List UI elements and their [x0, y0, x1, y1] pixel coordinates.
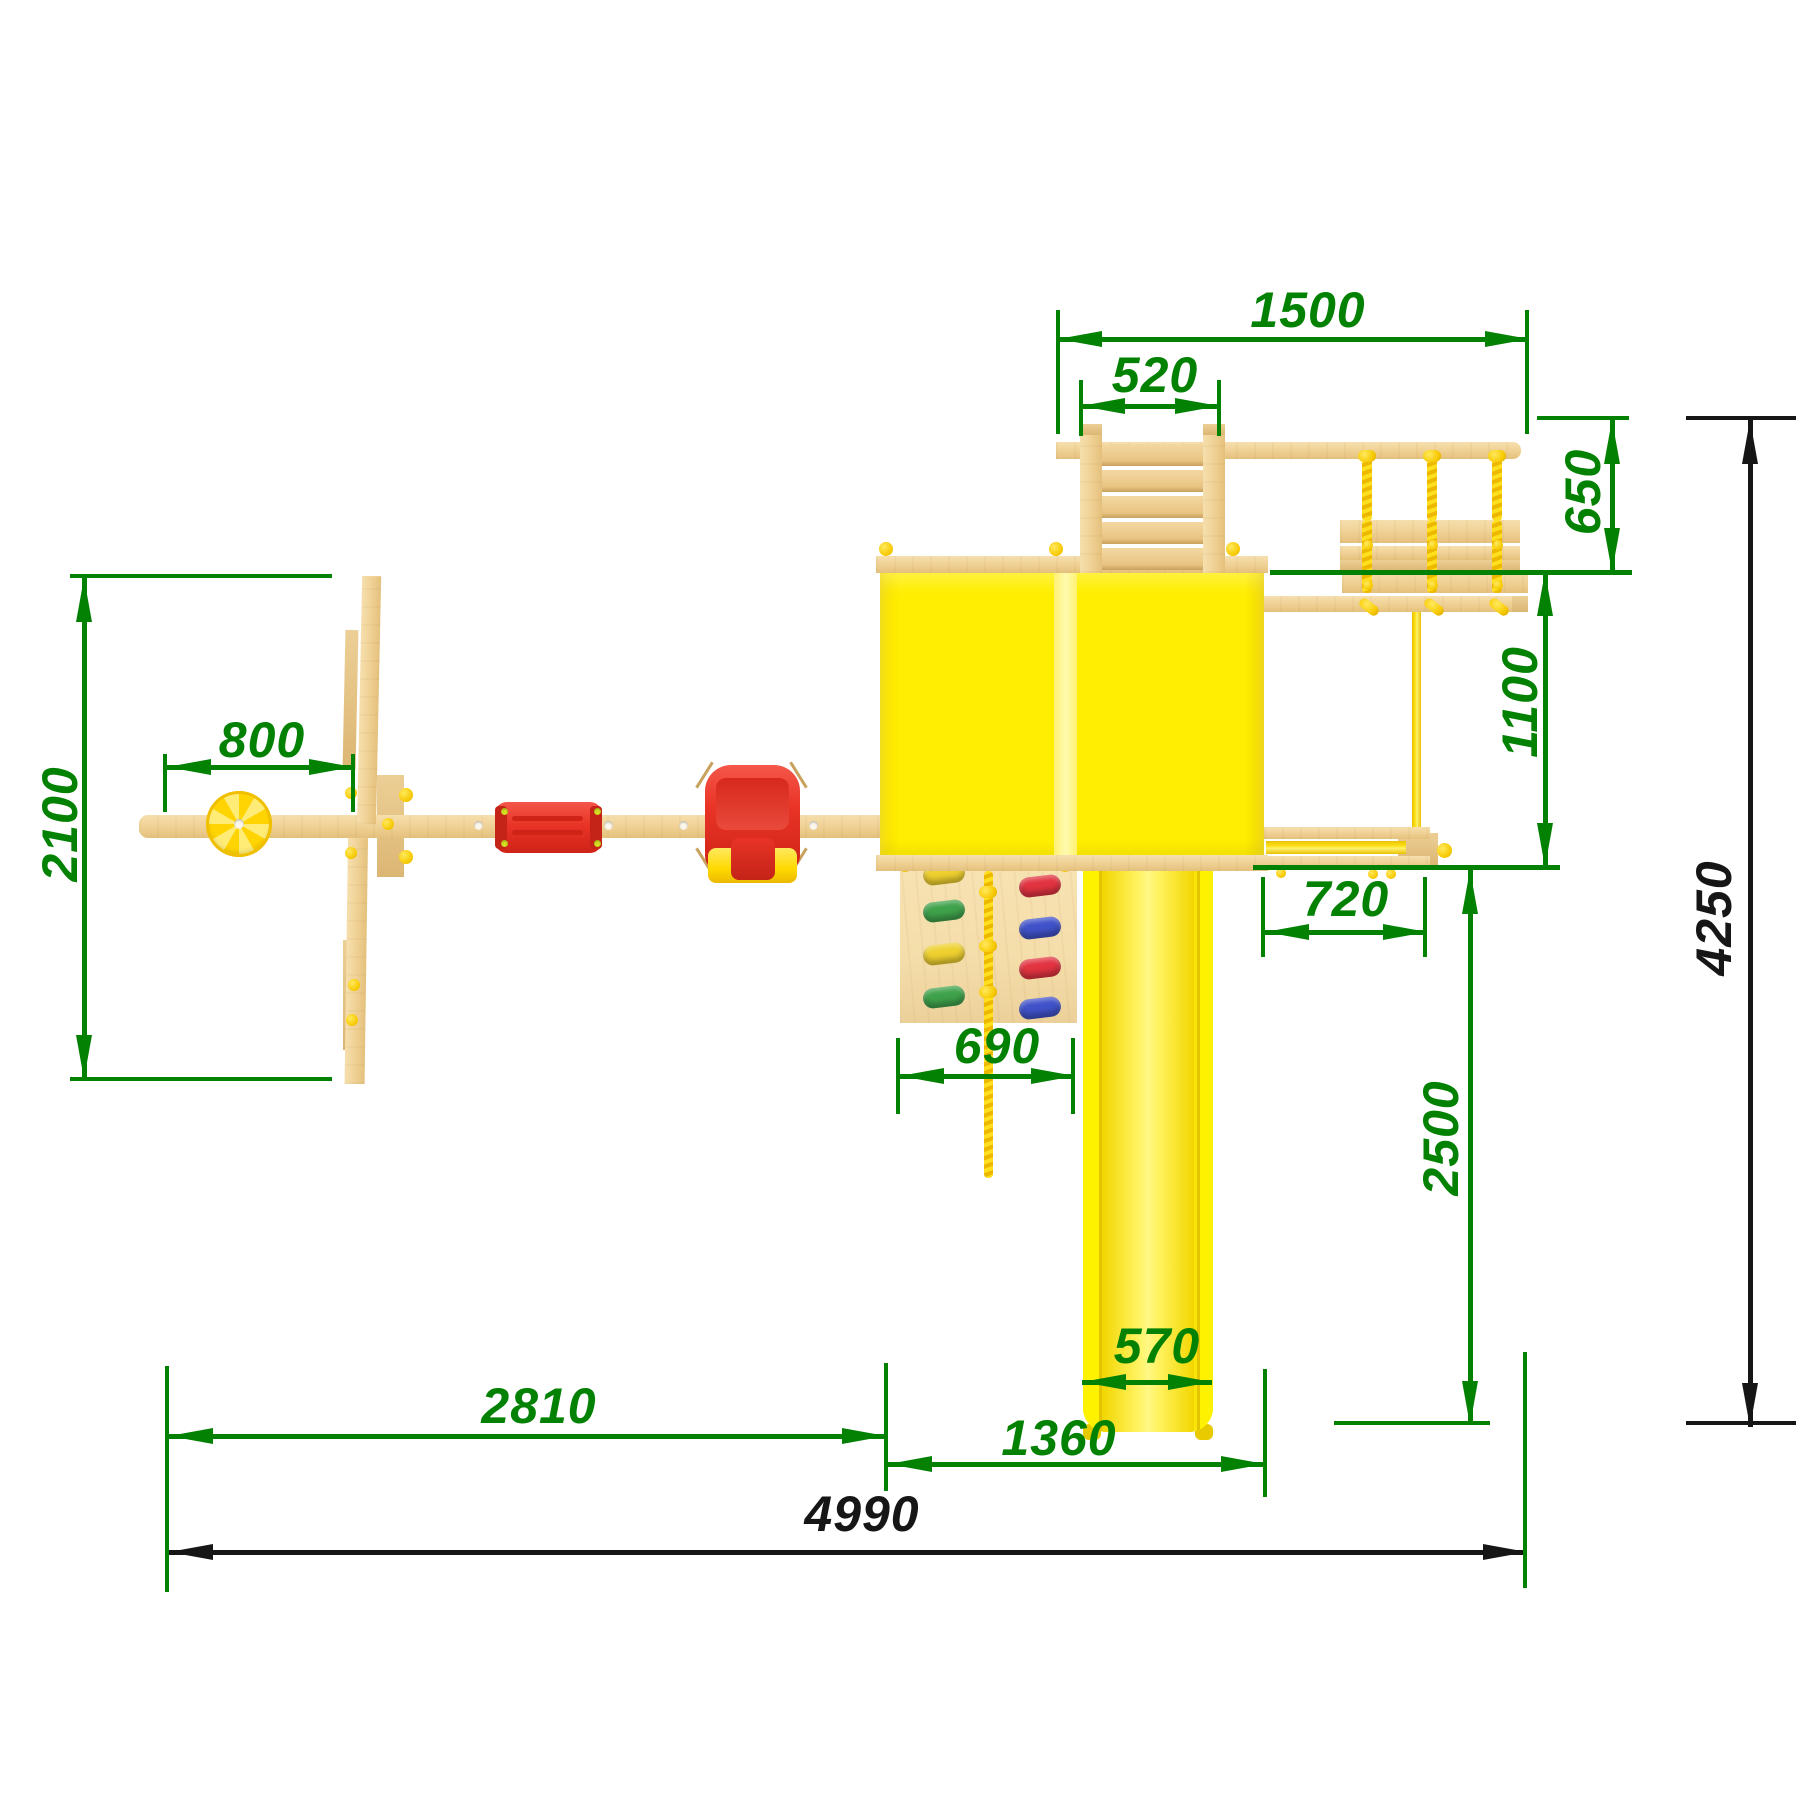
dim-arrow: [76, 1035, 92, 1079]
dim-arrow: [888, 1456, 932, 1472]
dim-ext-line: [1056, 310, 1060, 434]
rope-wrap: [1488, 450, 1506, 462]
dim-ext-line: [70, 574, 332, 578]
dim-arrow: [1058, 331, 1102, 347]
beam-bolt-hole: [604, 821, 613, 830]
climbing-rope-knot: [979, 940, 997, 952]
platform-edge-bottom: [876, 855, 1268, 871]
rope-knot: [1493, 540, 1503, 550]
dim-ext-line: [1261, 877, 1265, 957]
dim-ext-line: [1686, 416, 1796, 420]
dim-label-4990: 4990: [804, 1489, 919, 1539]
swing-frame-leg-tube: [1412, 612, 1421, 836]
dim-arrow: [76, 578, 92, 622]
ladder-rail-left: [1080, 424, 1102, 573]
bolt-cap: [382, 818, 394, 830]
dim-ext-line: [1334, 1421, 1490, 1425]
baby-seat-inner: [716, 778, 789, 830]
seat-bolt: [594, 808, 601, 815]
dim-arrow: [900, 1068, 944, 1084]
dim-arrow: [1082, 1374, 1126, 1390]
monkey-strut-tube: [1266, 841, 1406, 854]
seat-bolt: [501, 808, 508, 815]
climbing-rope-knot: [979, 986, 997, 998]
ladder-step: [1102, 444, 1203, 466]
a-frame-leg-lower: [345, 838, 368, 1084]
dim-ext-line: [70, 1077, 332, 1081]
dim-arrow: [1168, 1374, 1212, 1390]
rope-knot: [1493, 580, 1503, 590]
dim-ref-line-strut: [1253, 865, 1560, 870]
dim-label-650: 650: [1558, 449, 1608, 535]
dim-ext-line: [1686, 1421, 1796, 1425]
dim-arrow: [169, 1544, 213, 1560]
bolt-cap: [399, 788, 413, 802]
dim-label-2500: 2500: [1416, 1080, 1466, 1195]
bolt-cap: [345, 847, 357, 859]
dim-ext-line: [1423, 877, 1427, 957]
dim-arrow: [1462, 1381, 1478, 1425]
dim-arrow: [1742, 420, 1758, 464]
strut-knob: [1437, 843, 1452, 858]
steering-wheel-hub: [234, 819, 244, 829]
rope-wrap: [1423, 450, 1441, 462]
lower-beam-end-cap: [1512, 596, 1528, 612]
dim-label-690: 690: [954, 1021, 1040, 1071]
dim-label-2100: 2100: [35, 766, 85, 881]
ladder-rail-right-cap: [1203, 424, 1225, 435]
flat-seat-rib: [512, 816, 583, 821]
dim-arrow: [842, 1428, 886, 1444]
platform-bolt-cap: [1049, 542, 1063, 556]
beam-bolt-hole: [809, 821, 818, 830]
beam-bolt-hole: [679, 821, 688, 830]
rope-wrap: [1358, 450, 1376, 462]
flat-swing-seat: [495, 802, 602, 853]
dim-label-1360: 1360: [1001, 1413, 1116, 1463]
dim-ext-line: [1525, 310, 1529, 434]
flat-seat-rib: [512, 830, 583, 835]
dim-label-4250: 4250: [1689, 860, 1739, 975]
bolt-cap: [399, 850, 413, 864]
dim-label-2810: 2810: [481, 1381, 596, 1431]
dim-line: [1748, 420, 1753, 1427]
slide-rail-left: [1083, 866, 1102, 1432]
dim-arrow: [1537, 572, 1553, 616]
dim-label-520: 520: [1112, 350, 1198, 400]
baby-seat-tongue: [731, 838, 775, 880]
dim-label-570: 570: [1114, 1321, 1200, 1371]
seat-bolt: [501, 840, 508, 847]
ladder-rail-left-cap: [1080, 424, 1102, 435]
dim-label-1100: 1100: [1495, 646, 1545, 758]
dim-arrow: [169, 1428, 213, 1444]
dim-label-720: 720: [1303, 874, 1389, 924]
ladder-rail-right: [1203, 424, 1225, 573]
rope-knot: [1428, 540, 1438, 550]
bench-rope: [1362, 459, 1372, 521]
dim-label-1500: 1500: [1250, 285, 1365, 335]
dim-arrow: [1462, 870, 1478, 914]
rope-knot: [1428, 580, 1438, 590]
platform-bolt-cap: [1226, 542, 1240, 556]
dim-line: [169, 1550, 1527, 1555]
rope-knot: [1363, 580, 1373, 590]
a-frame-back-plank-upper: [343, 630, 359, 770]
climbing-rope-knot: [979, 886, 997, 898]
dim-ref-line-bench-front: [1270, 570, 1632, 575]
dim-arrow: [167, 759, 211, 775]
ladder-step: [1102, 522, 1203, 544]
dim-arrow: [1483, 1544, 1527, 1560]
dim-arrow: [1537, 823, 1553, 867]
rope-knot: [1363, 540, 1373, 550]
dim-line: [169, 1434, 886, 1439]
ladder-step: [1102, 470, 1203, 492]
dim-label-800: 800: [219, 715, 305, 765]
ladder-step: [1102, 496, 1203, 518]
dim-arrow: [309, 759, 353, 775]
bolt-cap: [346, 1014, 358, 1026]
dim-ext-line: [1263, 1369, 1267, 1497]
bolt-cap: [348, 979, 360, 991]
bench-rope: [1492, 459, 1502, 521]
dim-arrow: [1742, 1383, 1758, 1427]
ladder-step: [1102, 548, 1203, 570]
dim-arrow: [1383, 924, 1427, 940]
playground-top-view-drawing: 1500 520 650 1100 2100 800: [0, 0, 1800, 1800]
beam-bolt-hole: [474, 821, 483, 830]
dim-arrow: [1221, 1456, 1265, 1472]
bench-rope: [1427, 459, 1437, 521]
seat-bolt: [594, 840, 601, 847]
dim-arrow: [1485, 331, 1529, 347]
platform-bolt-cap: [879, 542, 893, 556]
monkey-strut-rail-top: [1264, 827, 1430, 839]
dim-ext-line-right: [1523, 1352, 1527, 1588]
tower-roof-ridge: [1054, 573, 1077, 855]
